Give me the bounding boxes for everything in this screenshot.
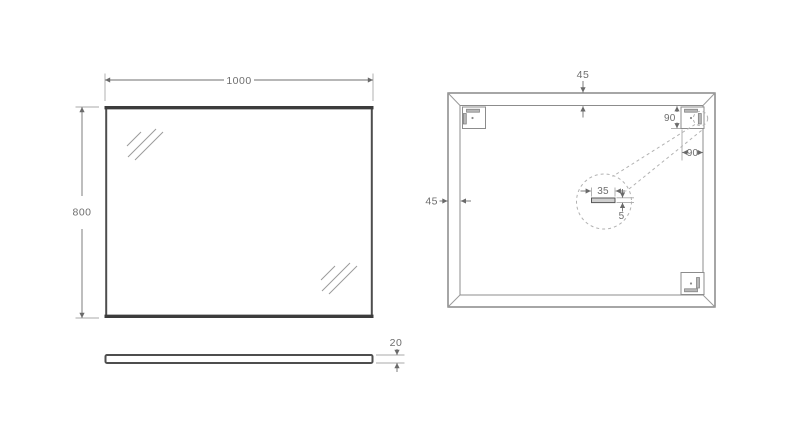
slot-thickness-dim-label: 5 (619, 211, 625, 222)
bracket-screw-dot (690, 117, 692, 119)
side-view: 20 (106, 337, 405, 372)
mount-bracket-bottom-right (681, 273, 704, 295)
side-thickness-dim-label: 20 (390, 337, 403, 349)
bracket-screw-dot (471, 117, 473, 119)
bracket-side-bar (698, 114, 701, 125)
bracket-screw-dot (690, 282, 692, 284)
front-view: 1000 800 (72, 74, 373, 319)
bracket-side-bar (697, 278, 700, 289)
back-inner-frame (460, 106, 703, 296)
mount-bracket-top-left (463, 107, 486, 129)
keyhole-slot (592, 198, 616, 203)
mirror-drawing-svg: 1000 800 20 (0, 0, 800, 426)
slot-width-dim-label: 35 (597, 186, 609, 197)
front-height-dimension: 800 (72, 107, 99, 318)
bracket-vertical-offset-label: 90 (664, 113, 676, 124)
side-thickness-dimension: 20 (376, 337, 405, 372)
bracket-hanger-bar (685, 289, 698, 292)
front-height-dim-label: 800 (72, 207, 91, 219)
back-view: 45 45 90 90 (425, 69, 715, 307)
bracket-side-bar (463, 114, 466, 125)
technical-drawing-canvas: 1000 800 20 (0, 0, 800, 426)
bracket-hanger-bar (467, 109, 480, 112)
mirror-side-profile (106, 355, 373, 363)
front-width-dim-label: 1000 (226, 75, 251, 87)
bracket-hanger-bar (685, 109, 698, 112)
back-frame-top-dim-label: 45 (577, 69, 590, 81)
back-frame-left-dim-label: 45 (425, 196, 438, 208)
bracket-horizontal-offset-label: 90 (687, 148, 699, 159)
front-width-dimension: 1000 (105, 74, 373, 102)
